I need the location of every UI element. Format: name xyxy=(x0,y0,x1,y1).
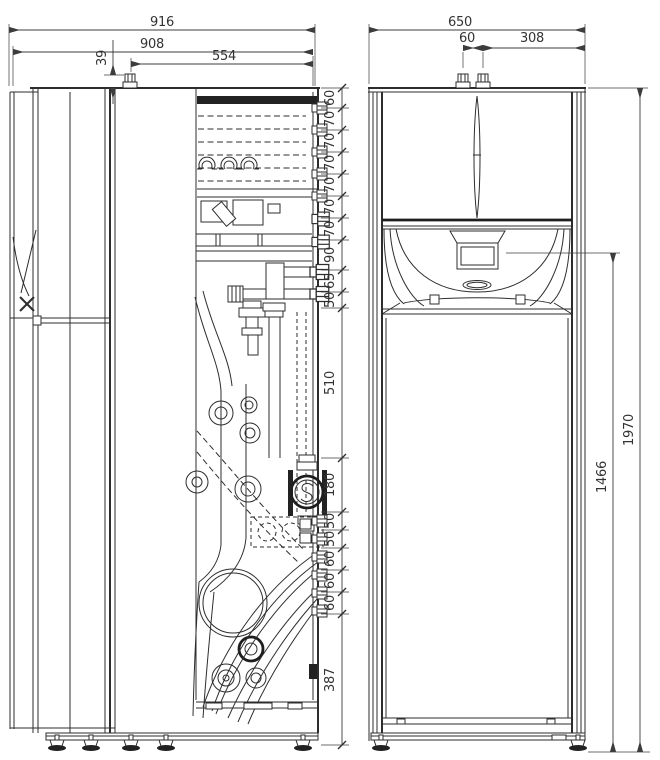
dim-916-label: 916 xyxy=(150,15,174,30)
pipe-clip-icon xyxy=(197,157,217,169)
side-internal-components xyxy=(186,96,329,724)
storage-tank-port xyxy=(199,569,267,637)
dim-front-top-right: 308 xyxy=(483,31,585,48)
dim-side-inner-width: 908 xyxy=(13,37,313,86)
technical-drawing-canvas: 916 908 554 39 650 60 308 1466 xyxy=(0,0,660,760)
flue-slot xyxy=(473,96,481,218)
dim-60-label: 60 xyxy=(459,31,475,46)
chain-dim-label: 50 xyxy=(323,513,338,529)
dim-front-width: 650 xyxy=(369,15,585,84)
cable-grommets xyxy=(186,397,261,502)
dim-chain-connections: 60 70 70 70 70 70 70 90 65 50 510 180 50… xyxy=(321,84,349,749)
dim-908-label: 908 xyxy=(140,37,164,52)
dim-connector-offset: 554 xyxy=(131,49,313,86)
chain-dim-label: 50 xyxy=(323,292,338,308)
panel-clip xyxy=(516,295,525,304)
dim-39-label: 39 xyxy=(95,50,110,66)
front-shelf-edge xyxy=(382,303,572,314)
chain-dim-label: 70 xyxy=(323,199,338,215)
front-lower-door xyxy=(382,318,572,724)
chain-dim-label: 70 xyxy=(323,133,338,149)
boiler-front-panel xyxy=(382,229,572,306)
pipe-clip-icon xyxy=(219,157,239,169)
side-cabinet-outline xyxy=(10,88,320,733)
pipe-clip-icon xyxy=(239,157,259,169)
side-base-and-feet xyxy=(46,733,318,751)
front-top-connector xyxy=(476,74,490,88)
upper-pipes xyxy=(196,234,312,261)
dim-1466-label: 1466 xyxy=(595,461,610,493)
display-recess xyxy=(450,231,505,243)
panel-clip xyxy=(430,295,439,304)
boiler-dimension-drawing: 916 908 554 39 650 60 308 1466 xyxy=(0,0,660,760)
side-top-connector xyxy=(123,74,137,88)
dim-308-label: 308 xyxy=(520,31,544,46)
heat-exchanger-dashed-plates xyxy=(198,116,306,181)
chain-dim-label: 70 xyxy=(323,221,338,237)
flue-duct xyxy=(195,291,246,592)
chain-dim-label: 510 xyxy=(323,371,338,395)
chain-dim-label: 60 xyxy=(323,551,338,567)
chain-dim-label: 60 xyxy=(323,90,338,106)
pump-rotor-icon xyxy=(301,484,313,502)
dim-height-total: 1970 xyxy=(588,88,650,752)
side-view xyxy=(10,74,329,751)
chain-dim-label: 65 xyxy=(323,273,338,289)
front-cabinet-outline xyxy=(368,88,586,741)
chain-dim-label: 60 xyxy=(323,573,338,589)
safety-valve xyxy=(239,301,265,355)
front-base-and-feet xyxy=(371,733,587,751)
dim-650-label: 650 xyxy=(448,15,472,30)
front-view xyxy=(368,74,587,751)
top-frame-bar xyxy=(197,96,317,104)
dim-front-top-gap: 60 xyxy=(459,31,483,68)
chain-dim-label: 60 xyxy=(323,595,338,611)
chain-dim-label: 70 xyxy=(323,177,338,193)
dim-1970-label: 1970 xyxy=(622,414,637,446)
chain-dim-label: 70 xyxy=(323,155,338,171)
fan-block xyxy=(233,200,263,225)
tee-valve-body xyxy=(266,263,284,299)
chain-dim-label: 70 xyxy=(323,111,338,127)
chain-dim-label: 387 xyxy=(323,668,338,692)
dim-554-label: 554 xyxy=(212,49,236,64)
dim-height-partial: 1466 xyxy=(506,253,620,752)
chain-dim-label: 180 xyxy=(323,473,338,497)
front-top-connector xyxy=(456,74,470,88)
chain-dim-label: 50 xyxy=(323,531,338,547)
chain-dim-label: 90 xyxy=(323,247,338,263)
